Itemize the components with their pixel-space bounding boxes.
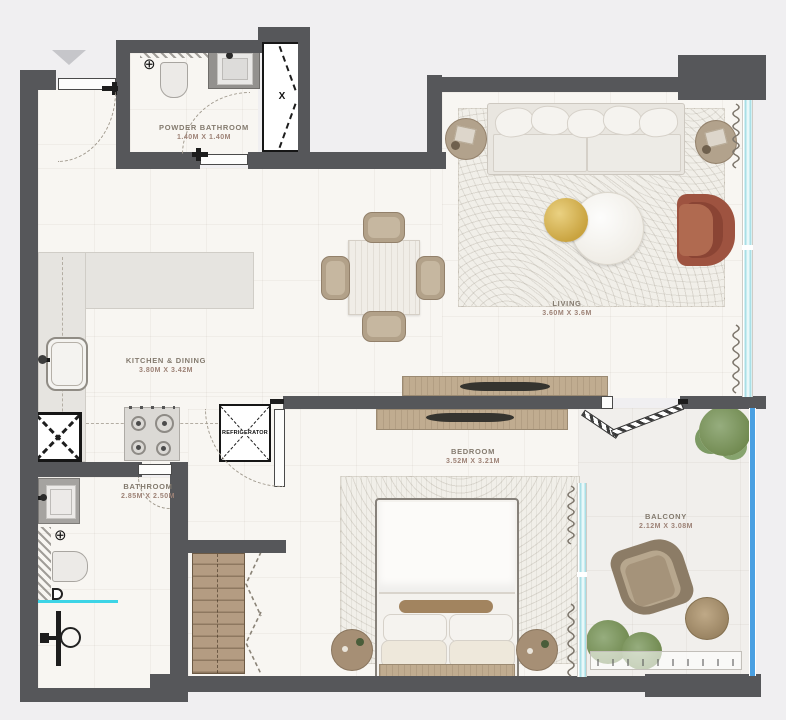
curtain-squiggle — [730, 104, 742, 168]
room-dims: 3.52M X 3.21M — [408, 458, 538, 466]
wall-segment — [158, 676, 652, 692]
balcony-plant — [699, 406, 751, 456]
wall-segment — [645, 674, 761, 697]
wall-segment — [150, 674, 188, 690]
bedroom-window — [577, 483, 587, 677]
wall-segment — [20, 688, 188, 702]
room-label-kitchen-dining: KITCHEN & DINING 3.80M X 3.42M — [101, 357, 231, 375]
kitchen-faucet-icon — [38, 355, 47, 364]
bed-pillow — [383, 614, 447, 642]
room-name: KITCHEN & DINING — [101, 357, 231, 365]
room-label-bedroom: BEDROOM 3.52M X 3.21M — [408, 448, 538, 466]
shower-glass-panel — [38, 600, 118, 603]
room-dims: 2.85M X 2.50M — [83, 493, 213, 501]
window-mullion — [577, 572, 587, 577]
dining-chair — [363, 212, 405, 243]
shower-valve — [40, 633, 49, 643]
dining-table — [348, 240, 420, 315]
balcony-glass-balustrade — [749, 408, 756, 676]
wall-segment — [20, 70, 56, 90]
wall-segment — [116, 152, 200, 169]
wardrobe-door-swing — [243, 551, 263, 617]
wall-segment — [427, 77, 680, 92]
shower-head-icon — [60, 627, 81, 648]
wardrobe — [192, 553, 245, 674]
wall-segment — [188, 540, 286, 553]
dining-chair — [416, 256, 445, 300]
water-point-icon: ⊕ — [143, 57, 156, 72]
powder-faucet-icon — [226, 52, 233, 59]
wall-segment — [298, 27, 310, 155]
room-dims: 1.40M X 1.40M — [139, 134, 269, 142]
nightstand — [516, 629, 558, 671]
nightstand — [331, 629, 373, 671]
shaft-duct — [34, 412, 82, 462]
gold-side-table — [544, 198, 588, 242]
tv-bedroom — [426, 413, 514, 422]
floor-plan: REFRIGERATOR ⊕ X — [0, 0, 786, 720]
bolster-pillow — [399, 600, 493, 613]
dining-chair — [321, 256, 350, 300]
entrance-arrow-icon — [52, 50, 86, 65]
room-label-bathroom: BATHROOM 2.85M X 2.50M — [83, 483, 213, 501]
room-dims: 3.60M X 3.6M — [502, 310, 632, 318]
wall-segment — [116, 40, 262, 53]
curtain-squiggle — [565, 604, 577, 676]
bed — [375, 498, 519, 680]
bathroom-door-leaf — [138, 464, 172, 475]
wall-segment — [678, 55, 766, 100]
door-hinge — [270, 399, 284, 404]
tv-living — [460, 382, 550, 391]
shaft-marker: X — [264, 91, 300, 102]
wall-segment — [248, 152, 446, 169]
wall-segment — [116, 52, 130, 164]
room-name: BEDROOM — [408, 448, 538, 456]
window-mullion — [742, 245, 753, 250]
powder-toilet — [160, 62, 188, 98]
room-dims: 2.12M X 3.08M — [601, 523, 731, 531]
duvet — [379, 502, 515, 594]
kitchen-counter-top — [58, 252, 254, 309]
bathroom-sink-counter — [38, 478, 80, 524]
terracotta-armchair — [677, 194, 735, 266]
stove — [124, 407, 180, 461]
room-label-powder-bathroom: POWDER BATHROOM 1.40M X 1.40M — [139, 124, 269, 142]
balcony-planter-rail — [590, 651, 742, 670]
wall-segment — [20, 462, 142, 477]
wall-segment — [20, 70, 38, 702]
curtain-squiggle — [565, 486, 577, 544]
bathroom-faucet-icon — [40, 494, 47, 501]
kitchen-sink — [46, 337, 88, 391]
door-hinge — [678, 399, 688, 404]
room-name: BALCONY — [601, 513, 731, 521]
water-point-icon: ⊕ — [54, 528, 67, 543]
door-frame — [601, 396, 613, 409]
room-label-balcony: BALCONY 2.12M X 3.08M — [601, 513, 731, 531]
toilet — [52, 551, 88, 582]
curtain-squiggle — [730, 325, 742, 393]
side-table — [445, 118, 487, 160]
wardrobe-door-swing — [243, 611, 263, 675]
room-dims: 3.80M X 3.42M — [101, 367, 231, 375]
room-name: BATHROOM — [83, 483, 213, 491]
room-name: LIVING — [502, 300, 632, 308]
bathroom-wall-finish — [38, 527, 51, 601]
wall-segment — [283, 396, 613, 409]
bed-pillow — [449, 614, 513, 642]
room-label-living: LIVING 3.60M X 3.6M — [502, 300, 632, 318]
dining-chair — [362, 311, 406, 342]
balcony-side-table — [685, 597, 729, 640]
room-name: POWDER BATHROOM — [139, 124, 269, 132]
